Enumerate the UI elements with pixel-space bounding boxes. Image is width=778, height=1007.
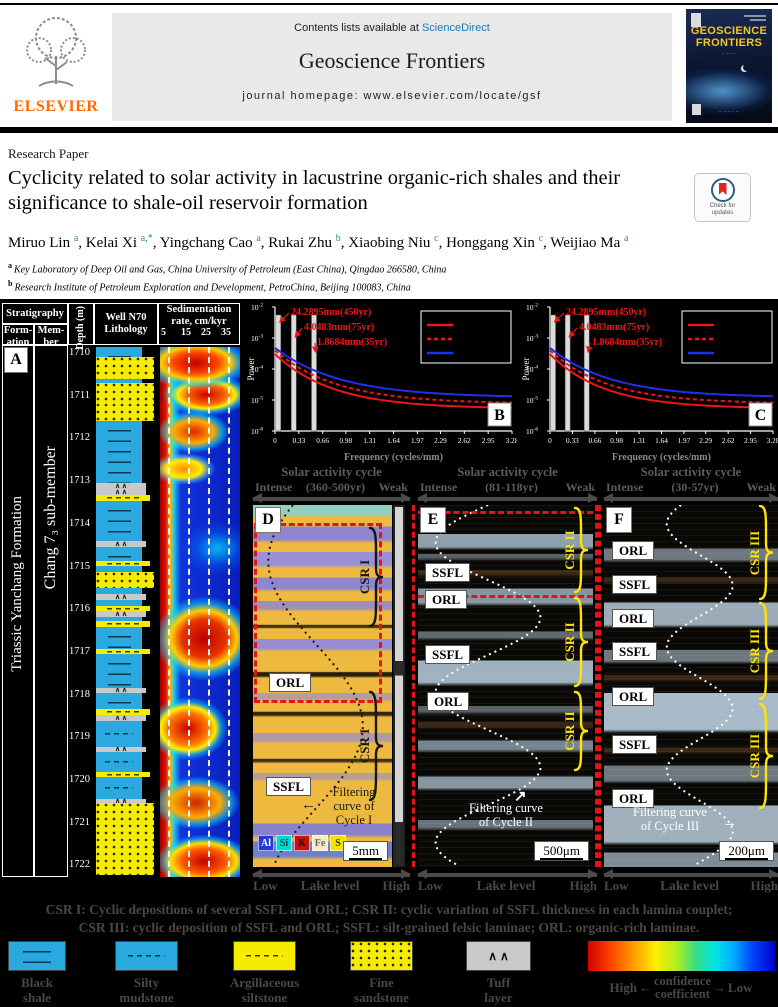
col-header-sedrate: Sedimentation rate, cm/kyr 5152535 <box>158 303 240 345</box>
article-title: Cyclicity related to solar activity in l… <box>8 166 673 216</box>
csr-label: CSR III <box>747 726 763 786</box>
check-updates-label: Check for updates <box>695 203 750 217</box>
member-cell: Chang 7₃ sub-member <box>34 345 68 877</box>
legend-label: Siltymudstone <box>92 975 202 1005</box>
depth-label: 1716 <box>66 603 90 614</box>
col-header-formation: Form-ation <box>2 324 34 345</box>
formation-text: Triassic Yanchang Formation <box>12 496 24 672</box>
lithology-layer-fs <box>96 383 154 403</box>
confidence-legend: High ← confidence coefficient → Low <box>584 975 778 1001</box>
cycle-header-F: Solar activity cycleIntense(30-57yr)Weak <box>604 465 778 501</box>
scale-bar-E: 500μm <box>534 841 589 861</box>
author: Rukai Zhu b <box>268 235 341 251</box>
lamina-label-orl: ORL <box>269 673 311 692</box>
legend-label: Blackshale <box>0 975 92 1005</box>
lamina-label-ssfl: SSFL <box>612 735 657 754</box>
legend-label: Argillaceoussiltstone <box>210 975 320 1005</box>
element-chip-Fe: Fe <box>312 835 328 851</box>
svg-text:2.62: 2.62 <box>458 436 471 445</box>
affiliation: a Key Laboratory of Deep Oil and Gas, Ch… <box>8 259 748 277</box>
svg-text:1.31: 1.31 <box>363 436 376 445</box>
svg-text:10-6: 10-6 <box>251 427 263 437</box>
sed-tick-label: 5 <box>161 327 166 339</box>
contents-prefix: Contents lists available at <box>294 22 419 34</box>
note-arrow-icon: → <box>722 815 737 832</box>
svg-text:0.66: 0.66 <box>316 436 329 445</box>
col-header-member: Mem-ber <box>34 324 68 345</box>
sed-rate-ticks: 5152535 <box>159 327 239 339</box>
svg-text:2.29: 2.29 <box>699 436 712 445</box>
confidence-high-label: High <box>610 980 637 996</box>
lithology-layer-bs <box>96 347 142 357</box>
svg-text:0: 0 <box>273 436 277 445</box>
depth-label: 1719 <box>66 731 90 742</box>
svg-text:10-3: 10-3 <box>526 334 538 344</box>
spectrum-chart-C: 10-210-310-410-510-600.330.660.981.311.6… <box>520 301 778 463</box>
csr-label: CSR II <box>562 612 578 672</box>
author: Xiaobing Niu c <box>348 235 438 251</box>
core-position-strip <box>393 505 405 867</box>
cycle-header-D: Solar activity cycleIntense(360-500yr)We… <box>253 465 410 501</box>
depth-label: 1718 <box>66 689 90 700</box>
panel-label-F: F <box>606 507 632 533</box>
lithology-layer-bs <box>96 547 142 561</box>
depth-label: 1713 <box>66 475 90 486</box>
svg-text:24.2895mm(450yr): 24.2895mm(450yr) <box>566 307 646 318</box>
lake-level-arrow <box>604 873 778 877</box>
svg-text:Frequency (cycles/mm): Frequency (cycles/mm) <box>612 452 711 463</box>
sed-gridline-35 <box>228 347 230 877</box>
svg-text:1.8684mm(35yr): 1.8684mm(35yr) <box>317 337 387 348</box>
journal-homepage-link[interactable]: journal homepage: www.elsevier.com/locat… <box>112 90 672 102</box>
svg-text:3.28: 3.28 <box>506 436 517 445</box>
publisher-name: ELSEVIER <box>8 98 104 116</box>
paper-page: ELSEVIER Contents lists available at Sci… <box>0 0 778 1007</box>
right-arrow-icon: → <box>713 980 726 996</box>
svg-text:0.33: 0.33 <box>566 436 579 445</box>
intensity-arrow <box>604 497 778 501</box>
sed-gridline-25 <box>208 347 210 877</box>
legend-swatch-tf: ∧ ∧ <box>466 941 531 971</box>
lake-level-arrow <box>253 873 410 877</box>
journal-header-box: Contents lists available at ScienceDirec… <box>112 13 672 121</box>
csr-label: CSR II <box>562 520 578 580</box>
svg-text:0.98: 0.98 <box>610 436 623 445</box>
col-header-lithology: Well N70 Lithology <box>94 303 158 345</box>
affiliation: b Research Institute of Petroleum Explor… <box>8 277 748 295</box>
col-header-stratigraphy: Stratigraphy <box>2 303 68 324</box>
contents-line: Contents lists available at ScienceDirec… <box>112 22 672 34</box>
sed-gridline-15 <box>188 347 190 877</box>
depth-label: 1714 <box>66 518 90 529</box>
depth-label: 1721 <box>66 817 90 828</box>
svg-text:10-3: 10-3 <box>251 334 263 344</box>
depth-label: 1715 <box>66 561 90 572</box>
svg-text:0.33: 0.33 <box>292 436 305 445</box>
red-dashed-divider <box>595 505 601 867</box>
element-chip-Si: Si <box>276 835 292 851</box>
lithology-layer-fs <box>96 403 154 421</box>
lithology-column: ∧ ∧∧ ∧∧ ∧∧ ∧∧ ∧∧ ∧∧ ∧∧ ∧∧ ∧ <box>96 347 158 875</box>
author-list: Miruo Lin a, Kelai Xi a,*, Yingchang Cao… <box>8 233 728 252</box>
sed-tick-label: 35 <box>221 327 231 339</box>
lithology-layer-bs <box>96 654 142 688</box>
svg-text:2.95: 2.95 <box>482 436 495 445</box>
svg-text:Frequency (cycles/mm): Frequency (cycles/mm) <box>344 452 443 463</box>
legend-label: Finesandstone <box>327 975 437 1005</box>
cover-moon-icon <box>743 64 750 71</box>
panel-label-A: A <box>4 347 28 373</box>
lake-level-scale-D: LowLake levelHigh <box>253 871 410 894</box>
red-dashed-connector <box>412 505 415 867</box>
csr-label: CSR I <box>357 716 373 776</box>
scale-bar-F: 200μm <box>719 841 774 861</box>
depth-label: 1722 <box>66 859 90 870</box>
top-rule <box>0 3 778 5</box>
svg-text:10-5: 10-5 <box>251 396 263 406</box>
cover-decor-line <box>744 15 766 17</box>
cover-decor-line <box>750 19 766 21</box>
lithology-layer-bs <box>96 501 142 541</box>
lamina-label-orl: ORL <box>425 590 467 609</box>
author: Weijiao Ma a <box>550 235 628 251</box>
intensity-arrow <box>253 497 410 501</box>
scale-bar-D: 5mm <box>343 841 388 861</box>
lamina-label-ssfl: SSFL <box>425 645 470 664</box>
member-text: Chang 7₃ sub-member <box>45 446 57 589</box>
cover-title: GEOSCIENCE FRONTIERS <box>686 25 772 49</box>
lamina-label-orl: ORL <box>612 541 654 560</box>
cycle-header-E: Solar activity cycleIntense(81-118yr)Wea… <box>418 465 597 501</box>
header-rule <box>0 127 778 133</box>
csr-label: CSR III <box>747 523 763 583</box>
confidence-low-label: Low <box>728 980 753 996</box>
note-arrow-icon: ← <box>301 797 316 814</box>
cover-footer-text: ··· ········ ··· <box>686 109 772 114</box>
legend-swatch-fs <box>350 941 413 971</box>
svg-text:1.31: 1.31 <box>633 436 646 445</box>
lake-level-scale-F: LowLake levelHigh <box>604 871 778 894</box>
csr-label: CSR III <box>747 621 763 681</box>
confidence-colorbar <box>588 941 775 971</box>
svg-text:1.8684mm(35yr): 1.8684mm(35yr) <box>592 337 662 348</box>
svg-text:0.98: 0.98 <box>339 436 352 445</box>
author: Miruo Lin a <box>8 235 78 251</box>
elsevier-tree-icon <box>19 12 93 98</box>
lamina-label-orl: ORL <box>612 687 654 706</box>
legend-swatch-bs <box>8 941 66 971</box>
lamina-label-orl: ORL <box>427 692 469 711</box>
crossmark-icon <box>711 178 735 202</box>
lithology-layer-bs <box>96 421 142 483</box>
journal-cover[interactable]: GEOSCIENCE FRONTIERS ·· ··· ···· ··· ···… <box>686 9 772 123</box>
svg-text:10-2: 10-2 <box>526 303 538 313</box>
sed-gridline-5 <box>168 347 170 877</box>
panel-label-E: E <box>420 507 446 533</box>
power-spectrum-B: 10-210-310-410-510-600.330.660.981.311.6… <box>245 301 517 468</box>
cover-title-line2: FRONTIERS <box>686 37 772 49</box>
sciencedirect-link[interactable]: ScienceDirect <box>422 22 490 34</box>
lake-level-scale-E: LowLake levelHigh <box>418 871 597 894</box>
svg-text:1.97: 1.97 <box>411 436 424 445</box>
svg-text:0.66: 0.66 <box>588 436 601 445</box>
svg-text:10-5: 10-5 <box>526 396 538 406</box>
svg-text:10-6: 10-6 <box>526 427 538 437</box>
power-spectrum-C: 10-210-310-410-510-600.330.660.981.311.6… <box>520 301 778 468</box>
filtering-curve-note: Filtering curveof Cycle III <box>610 805 730 833</box>
svg-text:1.97: 1.97 <box>678 436 691 445</box>
lamina-label-ssfl: SSFL <box>612 575 657 594</box>
range-label: (30-57yr) <box>671 480 718 495</box>
depth-label: 1710 <box>66 347 90 358</box>
author: Honggang Xin c <box>446 235 543 251</box>
svg-text:3.28: 3.28 <box>767 436 778 445</box>
figure-caption-line1: CSR I: Cyclic depositions of several SSF… <box>0 901 778 919</box>
lithology-layer-bs <box>96 627 142 649</box>
elsevier-logo: ELSEVIER <box>8 12 104 124</box>
svg-text:1.64: 1.64 <box>387 436 400 445</box>
sed-tick-label: 25 <box>201 327 211 339</box>
photomicrograph-D: ORLSSFLCSR ICSR IFilteringcurve ofCycle … <box>253 505 392 867</box>
svg-text:Power: Power <box>521 358 531 381</box>
lithology-layer-sm <box>96 721 142 747</box>
lithology-layer-bs <box>96 693 142 709</box>
depth-label: 1717 <box>66 646 90 657</box>
spectrum-chart-B: 10-210-310-410-510-600.330.660.981.311.6… <box>245 301 517 463</box>
left-arrow-icon: ← <box>639 980 652 996</box>
formation-cell: Triassic Yanchang Formation <box>2 345 34 877</box>
legend-swatch-sm <box>115 941 178 971</box>
lamina-label-ssfl: SSFL <box>266 777 311 796</box>
panel-label-D: D <box>255 507 281 533</box>
lithology-layer-sm <box>96 777 142 799</box>
photomicrograph-E: SSFLORLSSFLORLCSR IICSR IICSR IIFilterin… <box>418 505 593 867</box>
csr-label: CSR II <box>562 701 578 761</box>
cover-mini-logo <box>691 13 701 27</box>
sed-tick-label: 15 <box>181 327 191 339</box>
intensity-arrow <box>418 497 597 501</box>
article-type-label: Research Paper <box>8 146 89 162</box>
lamina-label-ssfl: SSFL <box>425 563 470 582</box>
legend-label: Tufflayer <box>444 975 554 1005</box>
range-label: (81-118yr) <box>485 480 538 495</box>
confidence-label: confidence coefficient <box>654 975 711 1001</box>
filtering-curve-note: Filtering curveof Cycle II <box>446 801 566 829</box>
svg-text:24.2895mm(450yr): 24.2895mm(450yr) <box>291 307 371 318</box>
svg-text:Power: Power <box>246 358 256 381</box>
svg-text:1.64: 1.64 <box>655 436 668 445</box>
cover-subtitle: ·· ··· ···· <box>686 51 772 56</box>
figure-caption-line2: CSR III: cyclic deposition of SSFL and O… <box>0 919 778 937</box>
journal-name: Geoscience Frontiers <box>112 48 672 74</box>
range-label: (360-500yr) <box>306 480 365 495</box>
check-for-updates-badge[interactable]: Check for updates <box>694 173 751 222</box>
element-chip-Al: Al <box>258 835 274 851</box>
csr-label: CSR I <box>357 547 373 607</box>
author: Kelai Xi a,* <box>86 235 153 251</box>
figure-1: Stratigraphy Form-ation Mem-ber Depth (m… <box>0 299 778 1007</box>
lithology-layer-fs <box>96 803 154 875</box>
svg-text:4.0483mm(75yr): 4.0483mm(75yr) <box>304 322 374 333</box>
lithology-layer-sm <box>96 752 142 772</box>
element-chip-K: K <box>294 835 310 851</box>
photomicrograph-F: ORLSSFLORLSSFLORLSSFLORLCSR IIICSR IIICS… <box>604 505 778 867</box>
lamina-label-orl: ORL <box>612 609 654 628</box>
lithology-layer-fs <box>96 572 154 588</box>
svg-text:C: C <box>755 407 767 424</box>
svg-text:0: 0 <box>548 436 552 445</box>
filtering-curve-note: Filteringcurve ofCycle I <box>319 785 389 827</box>
lamina-label-ssfl: SSFL <box>612 642 657 661</box>
svg-text:2.95: 2.95 <box>744 436 757 445</box>
svg-text:2.62: 2.62 <box>722 436 735 445</box>
svg-text:B: B <box>494 407 505 424</box>
legend-swatch-as <box>233 941 296 971</box>
note-arrow-icon: ↗ <box>514 787 527 806</box>
svg-text:4.0483mm(75yr): 4.0483mm(75yr) <box>579 322 649 333</box>
svg-text:10-2: 10-2 <box>251 303 263 313</box>
depth-label: 1711 <box>66 390 90 401</box>
lithology-layer-fs <box>96 357 154 379</box>
depth-label: 1712 <box>66 432 90 443</box>
author: Yingchang Cao a <box>160 235 261 251</box>
lake-level-arrow <box>418 873 597 877</box>
col-header-depth: Depth (m) <box>68 303 94 345</box>
depth-label: 1720 <box>66 774 90 785</box>
svg-text:2.29: 2.29 <box>434 436 447 445</box>
